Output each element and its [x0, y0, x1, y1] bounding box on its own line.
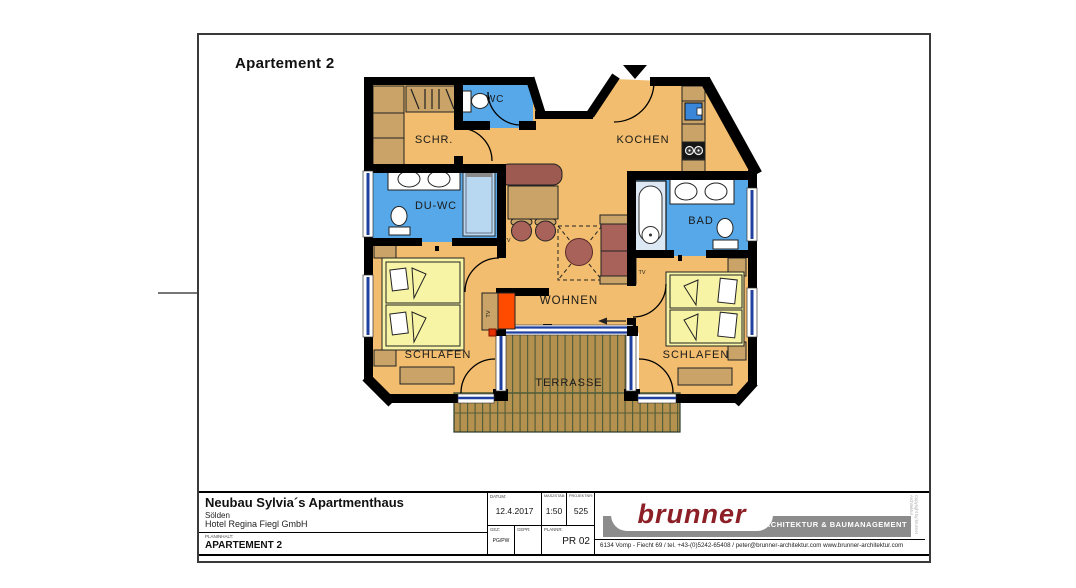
fold-mark [158, 292, 198, 294]
divider [199, 532, 487, 533]
datum-label: DATUM: [490, 494, 506, 499]
room-label-wohnen: WOHNEN [540, 295, 598, 307]
page-title: Apartement 2 [235, 55, 334, 72]
brand-name: brunner [637, 499, 746, 529]
title-block-meta: DATUM: 12.4.2017 MASZSTAB: 1:50 PROJEKTN… [487, 493, 594, 554]
title-block: Neubau Sylvia´s Apartmenthaus Sölden Hot… [199, 491, 929, 556]
gepr-label: GEPR: [517, 527, 530, 532]
entrance-marker [623, 65, 647, 79]
gepr-cell: GEPR: [515, 526, 542, 554]
room-label-kochen: KOCHEN [616, 134, 669, 146]
plannr-value: PR 02 [542, 536, 595, 547]
title-block-project-info: Neubau Sylvia´s Apartmenthaus Sölden Hot… [199, 493, 487, 554]
brand-tagline: ARCHITEKTUR & BAUMANAGEMENT [758, 520, 908, 529]
architect-address: 6134 Vomp - Fiecht 69 / tel. +43-(0)5242… [600, 542, 928, 549]
plannr-cell: PLANNR: PR 02 [542, 526, 595, 554]
architect-logo-section: brunner ARCHITEKTUR & BAUMANAGEMENT 6134… [594, 493, 930, 554]
gez-cell: GEZ: PG/PW [488, 526, 515, 554]
drawing-sheet: Apartement 2 [197, 33, 931, 563]
project-client: Hotel Regina Fiegl GmbH [205, 519, 308, 529]
floor-plan: WC SCHR. KOCHEN DU-WC BAD WOHNEN SCHLAFE… [349, 60, 779, 472]
tv-label-2: TV [486, 310, 492, 317]
room-label-bad: BAD [688, 215, 714, 227]
tv-label-1: TV [503, 238, 510, 244]
datum-value: 12.4.2017 [488, 506, 541, 516]
room-label-terrasse: TERRASSE [535, 377, 602, 389]
divider [595, 539, 925, 540]
scale-value: 1:50 [542, 506, 566, 516]
tv-label-3: TV [638, 270, 645, 276]
plannr-label: PLANNR: [544, 527, 563, 532]
project-no-cell: PROJEKTNR: 525 [567, 493, 595, 526]
project-no-label: PROJEKTNR: [569, 494, 593, 498]
project-no-value: 525 [567, 506, 595, 516]
gez-value: PG/PW [488, 538, 514, 544]
room-label-schrank: SCHR. [415, 134, 453, 146]
room-label-schlafen-left: SCHLAFEN [405, 349, 472, 361]
room-label-schlafen-right: SCHLAFEN [663, 349, 730, 361]
scale-cell: MASZSTAB: 1:50 [542, 493, 567, 526]
brunner-logo: brunner [611, 499, 773, 531]
scale-label: MASZSTAB: [544, 494, 565, 498]
datum-cell: DATUM: 12.4.2017 [488, 493, 542, 526]
plan-content-value: APARTEMENT 2 [205, 540, 282, 551]
room-label-wc: WC [486, 94, 504, 105]
gez-label: GEZ: [490, 527, 500, 532]
copyright-note: Copyright by brunner Architektur [909, 495, 919, 551]
project-title: Neubau Sylvia´s Apartmenthaus [205, 495, 404, 510]
plan-content-label: PLANINHALT: [205, 534, 233, 539]
screenshot-canvas: Apartement 2 [0, 0, 1076, 588]
room-label-du-wc: DU-WC [415, 200, 457, 212]
